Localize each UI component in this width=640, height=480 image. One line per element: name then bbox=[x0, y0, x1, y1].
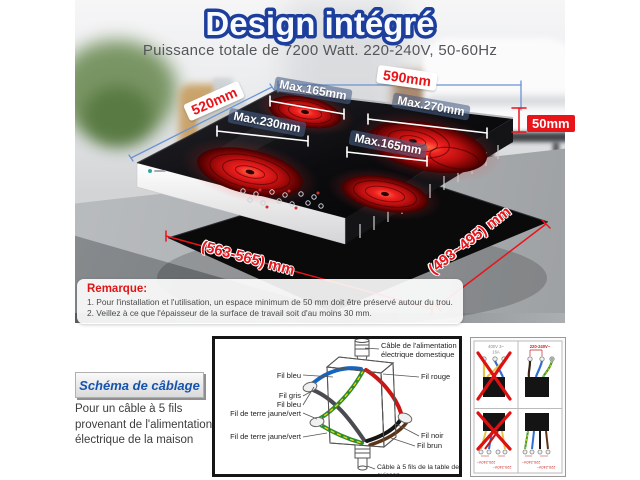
config-rotated-voltage-label: 220-240V~ bbox=[521, 460, 540, 464]
coffee-table-decor bbox=[477, 132, 565, 142]
wire-label-fil-bleu-1: Fil bleu bbox=[277, 371, 301, 380]
wiring-section-label-text: Schéma de câblage bbox=[79, 378, 200, 393]
config-rotated-voltage-label: 220-240V~ bbox=[492, 465, 511, 469]
config-rotated-voltage-label: 220-240V~ bbox=[476, 460, 495, 464]
config-wrong-amps-label: 16A bbox=[492, 350, 500, 355]
wiring-description: Pour un câble à 5 fils provenant de l'al… bbox=[75, 402, 223, 449]
dim-label-50mm: 50mm bbox=[527, 115, 575, 132]
page-title-text: Design intégré bbox=[205, 5, 434, 42]
subtitle: Puissance totale de 7200 Watt. 220-240V,… bbox=[0, 42, 640, 59]
wiring-config-panel: 400V 3~ 16A 220-240V~ bbox=[470, 337, 566, 477]
wiring-section-label: Schéma de câblage bbox=[75, 372, 204, 398]
remark-box: Remarque: 1. Pour l'installation et l'ut… bbox=[77, 279, 463, 324]
config-wrong-voltage-label: 400V 3~ bbox=[488, 344, 504, 349]
wire-label-fil-bleu-2: Fil bleu bbox=[277, 400, 301, 409]
product-infographic: Design intégré Design intégré Puissance … bbox=[0, 0, 640, 480]
cable-bottom-label: Câble à 5 fils de la table de cuisson bbox=[377, 464, 459, 480]
config-correct-voltage-label: 220-240V~ bbox=[530, 344, 551, 349]
page-title: Design intégré Design intégré bbox=[0, 2, 640, 46]
remark-heading: Remarque: bbox=[87, 283, 453, 295]
wire-label-fil-noir: Fil noir bbox=[421, 431, 444, 440]
config-rotated-voltage-label: 220-240V~ bbox=[536, 465, 555, 469]
wire-label-fil-gris: Fil gris bbox=[279, 391, 301, 400]
cable-top-label: Câble de l'alimentation électrique domes… bbox=[381, 342, 459, 359]
junction-box-drawing bbox=[215, 339, 459, 474]
plant-decor bbox=[83, 86, 153, 146]
remark-line-2: 2. Veillez à ce que l'épaisseur de la su… bbox=[87, 308, 453, 318]
wire-label-terre-1: Fil de terre jaune/vert bbox=[230, 409, 301, 418]
wire-label-fil-rouge: Fil rouge bbox=[421, 372, 450, 381]
remark-line-1: 1. Pour l'installation et l'utilisation,… bbox=[87, 297, 453, 307]
wire-label-terre-2: Fil de terre jaune/vert bbox=[230, 432, 301, 441]
wire-label-fil-brun: Fil brun bbox=[417, 441, 442, 450]
wiring-diagram: Fil bleu Fil gris Fil bleu Fil de terre … bbox=[212, 336, 462, 477]
